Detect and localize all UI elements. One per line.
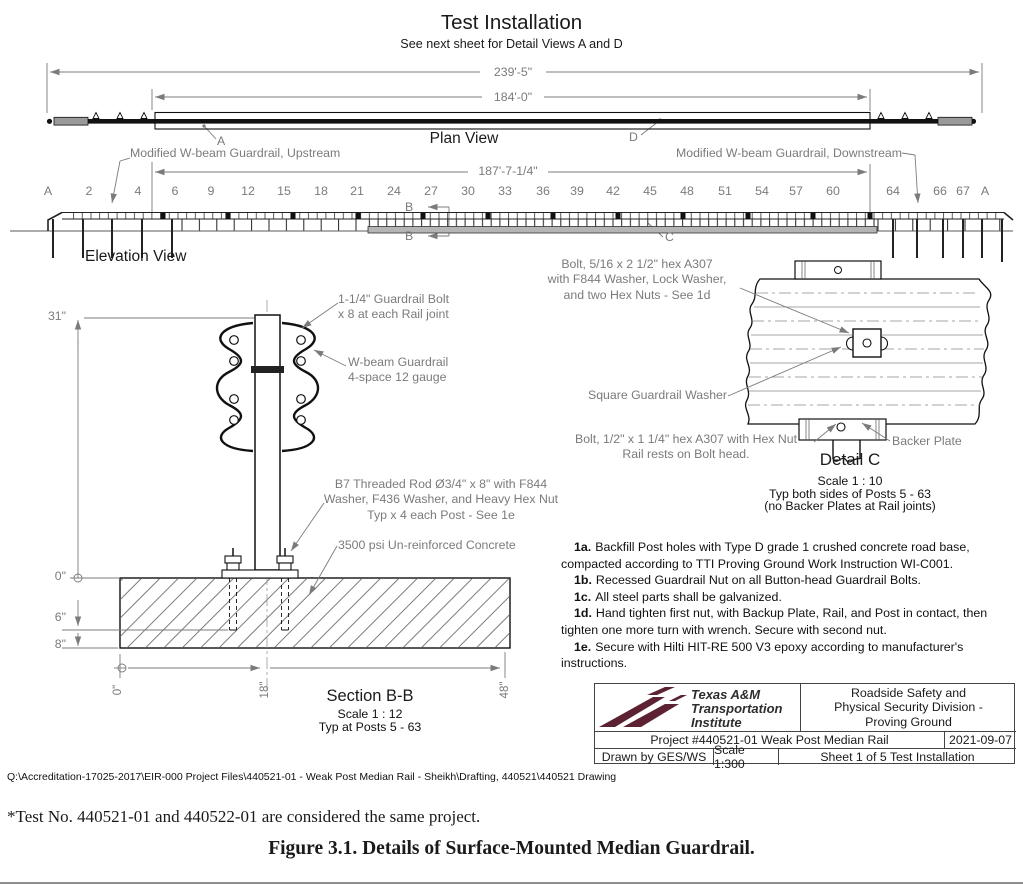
- note-id: 1e.: [574, 640, 591, 654]
- footnote: *Test No. 440521-01 and 440522-01 are co…: [7, 807, 480, 827]
- post-number: 21: [350, 184, 364, 198]
- dim-b48: 48": [499, 675, 511, 705]
- sheet-cell: Sheet 1 of 5 Test Installation: [778, 748, 1016, 765]
- plan-dim-overall: 239'-5": [413, 65, 613, 80]
- post-number: 48: [680, 184, 694, 198]
- org-line3: Institute: [691, 716, 783, 730]
- drawing-subtitle: See next sheet for Detail Views A and D: [0, 37, 1023, 51]
- elevation-downstream-label: Modified W-beam Guardrail, Downstream: [650, 146, 902, 161]
- note-1e: 1e.Secure with Hilti HIT-RE 500 V3 epoxy…: [561, 639, 1017, 672]
- detail-c-note: (no Backer Plates at Rail joints): [757, 499, 943, 514]
- dim-31in: 31": [36, 309, 66, 324]
- note-text: Secure with Hilti HIT-RE 500 V3 epoxy ac…: [561, 640, 963, 671]
- post-number: 24: [387, 184, 401, 198]
- label-bolt-top: Bolt, 5/16 x 2 1/2" hex A307 with F844 W…: [536, 257, 738, 303]
- dim-8in: 8": [38, 637, 66, 652]
- note-1c: 1c.All steel parts shall be galvanized.: [561, 589, 1017, 606]
- post-number: 36: [536, 184, 550, 198]
- post-number: 6: [172, 184, 179, 198]
- report-page: { "colors": { "annotation_gray": "#7b7b7…: [0, 0, 1023, 886]
- label-backer-plate: Backer Plate: [892, 434, 962, 449]
- label-threaded-rod: B7 Threaded Rod Ø3/4" x 8" with F844 Was…: [320, 477, 562, 523]
- post-number: 39: [570, 184, 584, 198]
- post-number: 4: [135, 184, 142, 198]
- post-number: 9: [208, 184, 215, 198]
- label-concrete: 3500 psi Un-reinforced Concrete: [338, 538, 516, 553]
- tti-logo-icon: [599, 687, 689, 728]
- plan-callout-d: D: [629, 130, 638, 145]
- tti-logo-text: Texas A&M Transportation Institute: [691, 688, 783, 730]
- post-number: 30: [461, 184, 475, 198]
- post-number: 45: [643, 184, 657, 198]
- note-1a: 1a.Backfill Post holes with Type D grade…: [561, 539, 1017, 572]
- post-number: 51: [718, 184, 732, 198]
- post-number: 2: [86, 184, 93, 198]
- note-text: Backfill Post holes with Type D grade 1 …: [561, 540, 970, 571]
- page-bottom-rule: [0, 882, 1023, 884]
- note-id: 1a.: [574, 540, 591, 554]
- post-number: A: [44, 184, 52, 198]
- note-id: 1d.: [574, 606, 592, 620]
- note-1d: 1d.Hand tighten first nut, with Backup P…: [561, 605, 1017, 638]
- post-number: 12: [241, 184, 255, 198]
- org-line1: Texas A&M: [691, 688, 783, 702]
- post-number: 18: [314, 184, 328, 198]
- dim-b18: 18": [259, 675, 271, 705]
- post-number: A: [981, 184, 989, 198]
- section-marker-b-top: B: [405, 200, 413, 215]
- post-number: 42: [606, 184, 620, 198]
- post-number: 54: [755, 184, 769, 198]
- scale-cell: Scale 1:300: [713, 748, 778, 765]
- note-text: Recessed Guardrail Nut on all Button-hea…: [596, 573, 921, 587]
- post-number: 60: [826, 184, 840, 198]
- construction-notes: 1a.Backfill Post holes with Type D grade…: [561, 539, 1017, 672]
- elevation-dim-span: 187'-7-1/4": [408, 164, 608, 179]
- note-1b: 1b.Recessed Guardrail Nut on all Button-…: [561, 572, 1017, 589]
- section-bb-title: Section B-B: [290, 687, 450, 706]
- elevation-callout-c: C: [665, 230, 674, 245]
- note-text: All steel parts shall be galvanized.: [595, 590, 782, 604]
- section-bb-typ: Typ at Posts 5 - 63: [290, 720, 450, 735]
- tti-logo-cell: Texas A&M Transportation Institute: [595, 684, 800, 731]
- post-number: 15: [277, 184, 291, 198]
- plan-dim-rail: 184'-0": [413, 90, 613, 105]
- date-cell: 2021-09-07: [944, 731, 1016, 748]
- elevation-upstream-label: Modified W-beam Guardrail, Upstream: [130, 146, 340, 161]
- title-block: Texas A&M Transportation Institute Roads…: [594, 683, 1015, 764]
- note-id: 1c.: [574, 590, 591, 604]
- figure-caption: Figure 3.1. Details of Surface-Mounted M…: [0, 838, 1023, 860]
- elevation-view-title: Elevation View: [85, 248, 186, 266]
- drawn-by-cell: Drawn by GES/WS: [595, 748, 713, 765]
- plan-view-rail: [47, 113, 976, 130]
- dim-b0: 0": [112, 675, 124, 705]
- dim-0in: 0": [38, 569, 66, 584]
- post-number: 64: [886, 184, 900, 198]
- dim-6in: 6": [38, 610, 66, 625]
- note-text: Hand tighten first nut, with Backup Plat…: [561, 606, 987, 637]
- post-number: 66: [933, 184, 947, 198]
- plan-view-title: Plan View: [404, 130, 524, 148]
- label-wbeam: W-beam Guardrail 4-space 12 gauge: [348, 355, 448, 386]
- section-marker-b-bottom: B: [405, 229, 413, 244]
- file-path: Q:\Accreditation-17025-2017\EIR-000 Proj…: [7, 771, 616, 783]
- post-number: 33: [498, 184, 512, 198]
- drawing-title: Test Installation: [0, 11, 1023, 35]
- post-number: 57: [789, 184, 803, 198]
- division-cell: Roadside Safety and Physical Security Di…: [800, 684, 1016, 731]
- detail-c-title: Detail C: [770, 450, 930, 470]
- label-rail-bolt: 1-1/4" Guardrail Bolt x 8 at each Rail j…: [338, 292, 449, 323]
- post-number: 27: [424, 184, 438, 198]
- post-number: 67: [956, 184, 970, 198]
- label-square-washer: Square Guardrail Washer: [540, 388, 727, 403]
- post-number-row: A 2 4 6 9 12 15 18 21 24 27 30 33 36 39 …: [0, 184, 1023, 198]
- org-line2: Transportation: [691, 702, 783, 716]
- note-id: 1b.: [574, 573, 592, 587]
